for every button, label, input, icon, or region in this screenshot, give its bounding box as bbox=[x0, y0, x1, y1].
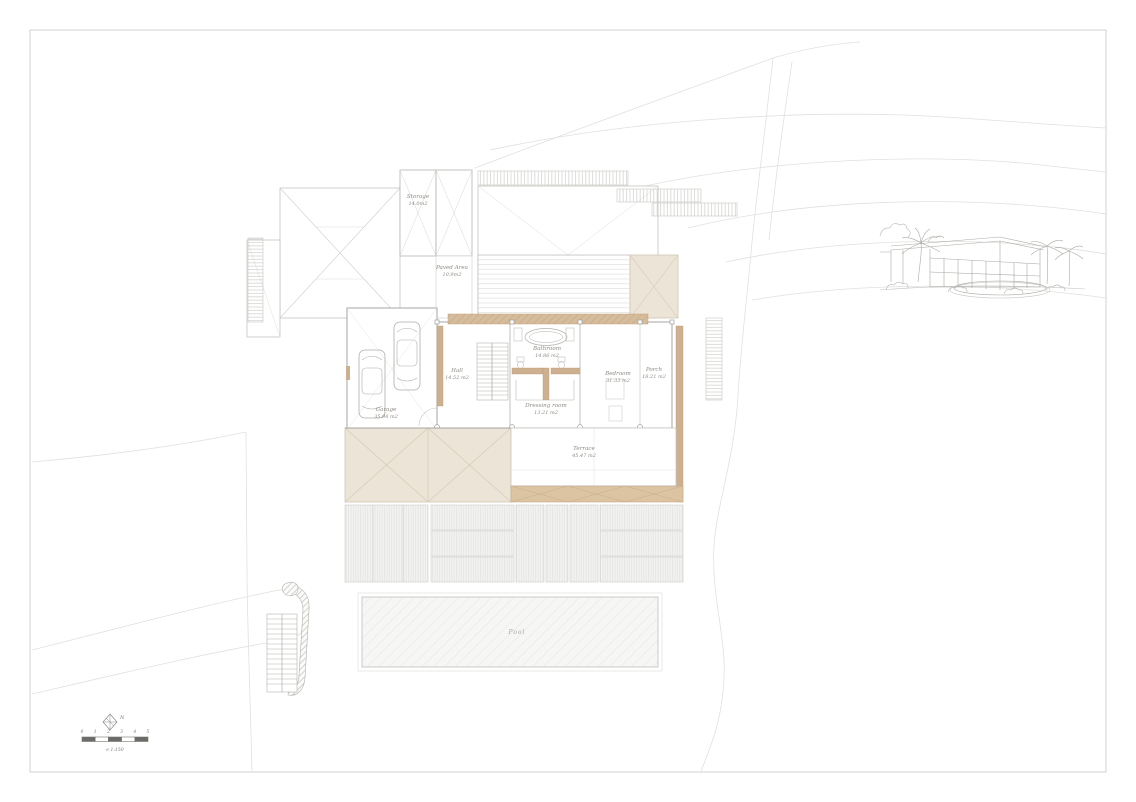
roof-main bbox=[478, 186, 678, 318]
scale-tick: 4 bbox=[132, 729, 136, 734]
label-terrace-area: 45.47 m2 bbox=[571, 453, 596, 459]
label-bedroom-area: 31.33 m2 bbox=[606, 378, 630, 384]
louver-strip-north bbox=[478, 171, 628, 185]
perspective-sketch bbox=[880, 224, 1085, 298]
label-garage-area: 35.98 m2 bbox=[374, 414, 398, 420]
wall-east bbox=[676, 326, 683, 502]
label-bedroom: Bedroom bbox=[604, 371, 631, 377]
bathtub-icon bbox=[525, 329, 567, 346]
label-porch-area: 18.21 m2 bbox=[642, 374, 666, 380]
wood-deck bbox=[345, 505, 683, 582]
label-bathroom: Bathroom bbox=[532, 346, 561, 352]
label-garage: Garage bbox=[376, 407, 397, 413]
wall-west bbox=[437, 326, 443, 406]
roof-beam bbox=[448, 314, 648, 324]
scale-ticks: 0 1 2 3 4 5 bbox=[81, 729, 150, 734]
north-label: N bbox=[119, 715, 125, 721]
scale-label: e 1:150 bbox=[106, 747, 123, 753]
label-paved-area: Paved Area bbox=[435, 265, 468, 271]
scale-tick: 5 bbox=[147, 729, 150, 734]
garage-side-door bbox=[346, 366, 350, 380]
label-porch: Porch bbox=[645, 367, 663, 373]
scale-tick: 0 bbox=[81, 729, 84, 734]
pergola-southwest bbox=[345, 428, 511, 502]
north-arrow: N bbox=[103, 714, 125, 730]
label-paved-area-size: 10.9m2 bbox=[442, 272, 461, 278]
label-storage-area: 14.0m2 bbox=[408, 201, 427, 207]
louver-strip-northeast-1 bbox=[617, 189, 701, 202]
label-pool: Pool bbox=[508, 629, 526, 636]
label-hall-area: 14.52 m2 bbox=[445, 375, 469, 381]
scale-tick: 1 bbox=[94, 729, 97, 734]
palm-tree-icon bbox=[1055, 246, 1083, 286]
deck-panel bbox=[600, 505, 683, 582]
label-dressing-room-area: 13.21 m2 bbox=[534, 410, 558, 416]
staircase bbox=[477, 343, 508, 400]
stair-treads bbox=[267, 614, 297, 692]
label-bathroom-area: 14.86 m2 bbox=[535, 353, 559, 359]
scale-tick: 2 bbox=[106, 729, 110, 734]
louver-strip-west bbox=[248, 238, 263, 322]
drawing-sheet: Storage 14.0m2 Paved Area 10.9m2 Garage … bbox=[0, 0, 1136, 802]
site-plan-drawing: Storage 14.0m2 Paved Area 10.9m2 Garage … bbox=[0, 0, 1136, 802]
palm-tree-icon bbox=[902, 228, 940, 282]
storage-roof bbox=[400, 170, 472, 256]
scale-tick: 3 bbox=[120, 729, 123, 734]
label-storage: Storage bbox=[407, 194, 430, 200]
palm-tree-icon bbox=[1031, 240, 1063, 284]
terrace-edge-beam bbox=[511, 486, 683, 502]
scale-segments bbox=[82, 737, 148, 742]
label-hall: Hall bbox=[450, 368, 463, 374]
exterior-stair bbox=[267, 582, 309, 695]
scale-bar: 0 1 2 3 4 5 e 1:150 bbox=[81, 729, 150, 753]
deck-panel bbox=[431, 505, 514, 582]
label-dressing-room: Dressing room bbox=[524, 403, 567, 409]
label-terrace: Terrace bbox=[573, 446, 595, 452]
louver-strip-east bbox=[706, 318, 722, 400]
louver-strip-northeast-2 bbox=[652, 203, 737, 216]
